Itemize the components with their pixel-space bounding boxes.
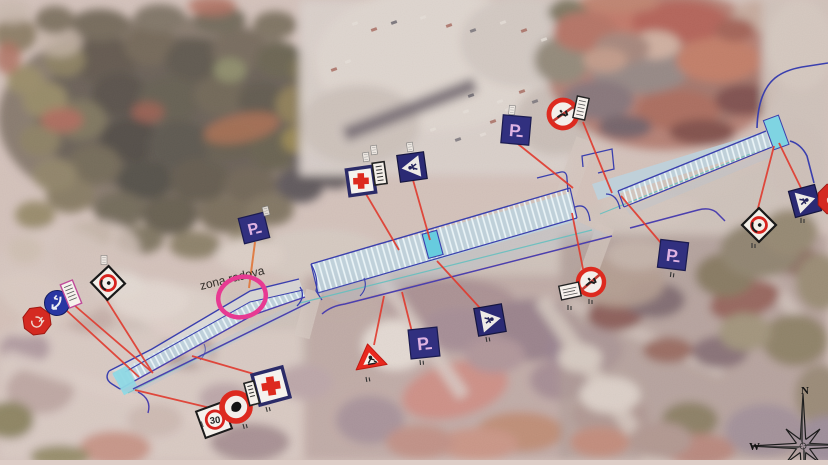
- svg-text:P: P: [416, 333, 430, 354]
- svg-text:P: P: [665, 245, 679, 266]
- svg-text:30: 30: [209, 415, 221, 427]
- svg-text:N: N: [801, 385, 809, 397]
- svg-text:P: P: [508, 120, 521, 141]
- svg-text:W: W: [749, 441, 760, 453]
